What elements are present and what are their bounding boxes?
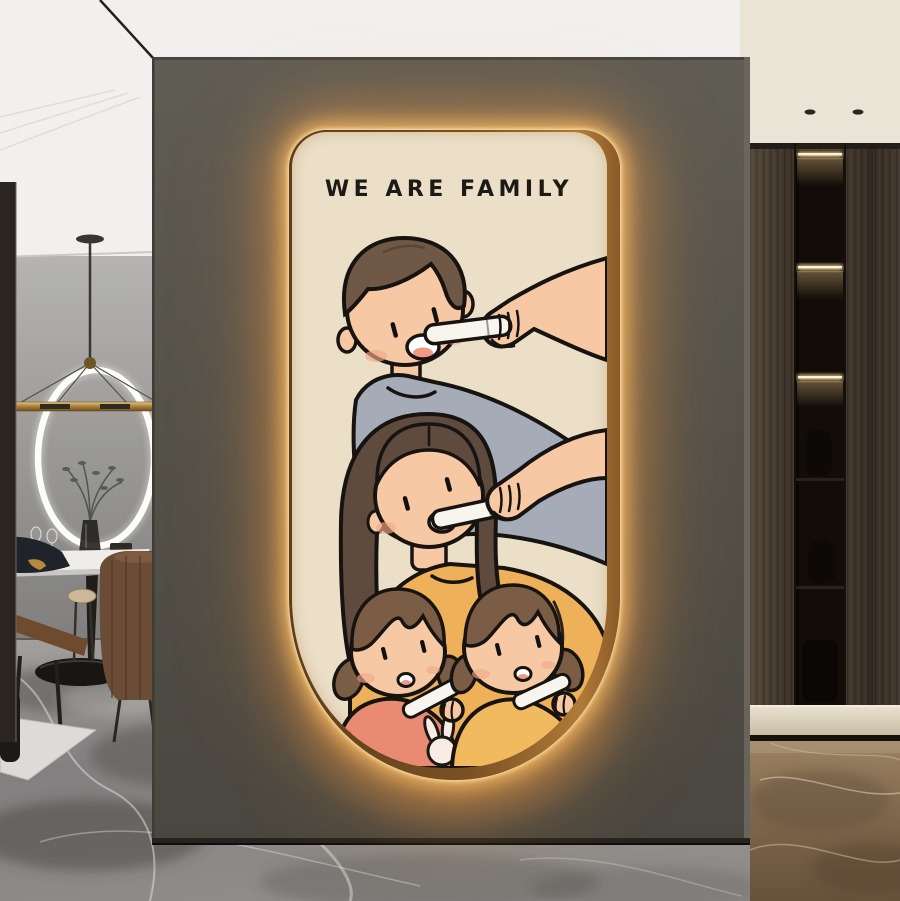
ceiling-right: [740, 0, 900, 146]
interior-photo-scene: WE ARE FAMILY: [0, 0, 900, 901]
recessed-spotlight: [805, 109, 816, 114]
led-artwork-frame: WE ARE FAMILY: [289, 130, 620, 780]
left-frame-post: [0, 182, 16, 742]
artwork-title: WE ARE FAMILY: [325, 177, 573, 202]
recessed-spotlight: [853, 109, 864, 114]
wardrobe: [750, 143, 900, 741]
shelf-decor: [808, 540, 836, 584]
shelf-decor: [802, 640, 838, 702]
led-artwork-canvas: WE ARE FAMILY: [292, 132, 607, 768]
brown-marble-floor: [750, 741, 900, 901]
family-illustration: WE ARE FAMILY: [292, 132, 607, 768]
wardrobe-baseboard: [750, 705, 900, 735]
shelf-decor: [806, 430, 832, 476]
wardrobe-niche: [795, 150, 845, 705]
